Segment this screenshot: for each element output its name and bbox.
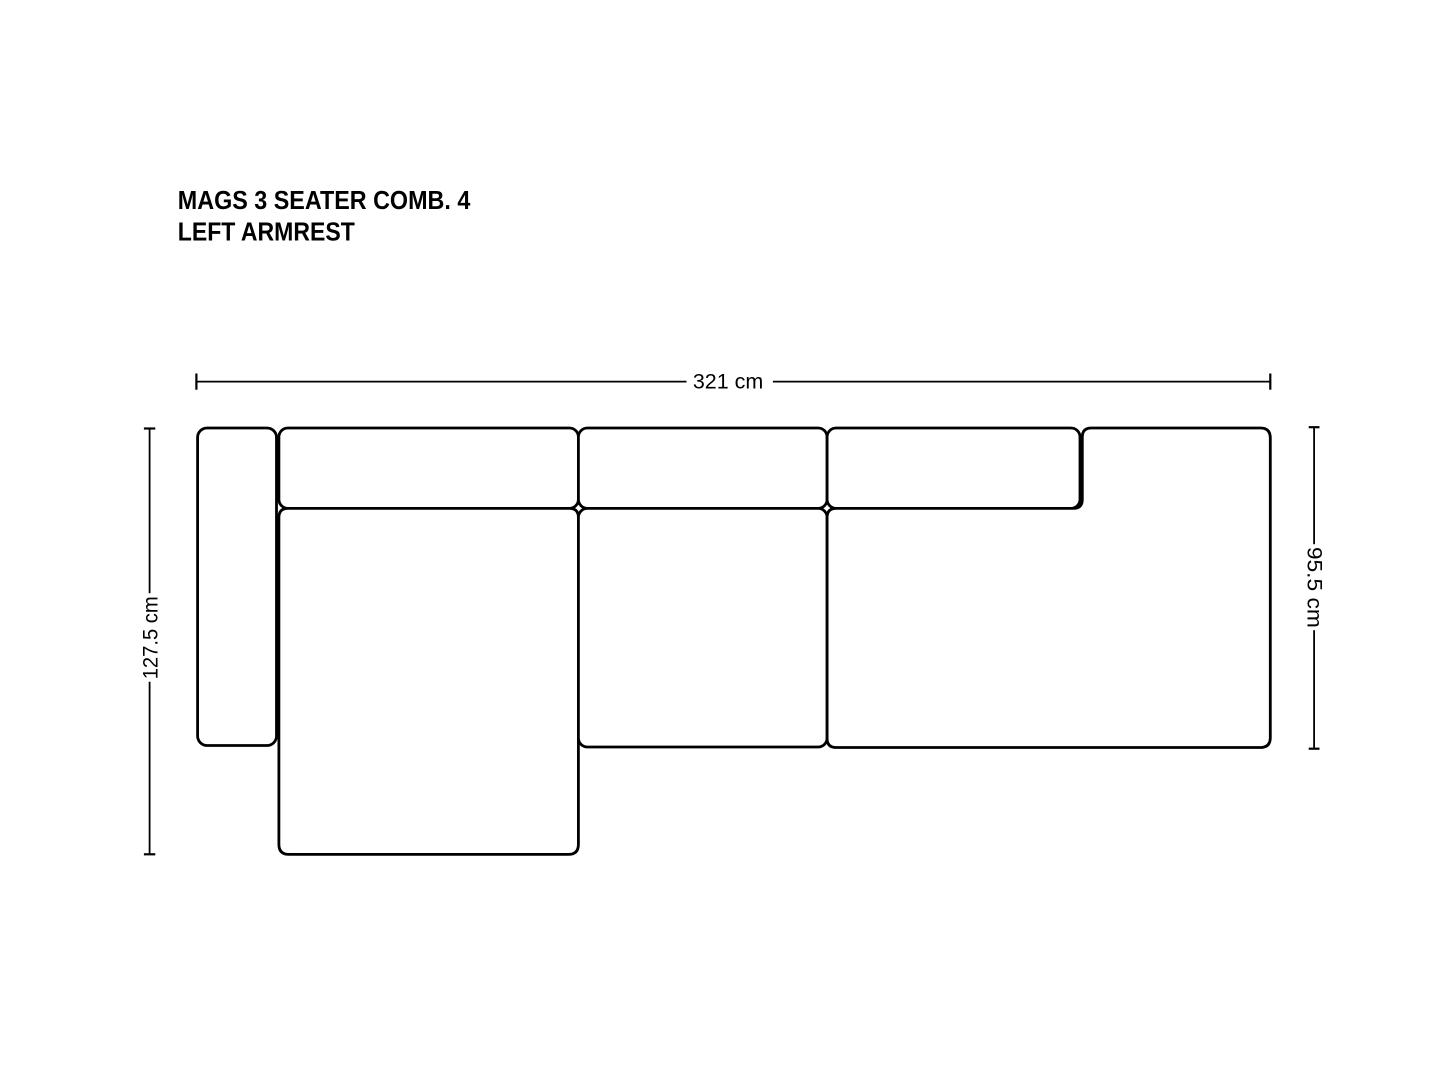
svg-text:MAGS 3 SEATER COMB. 4: MAGS 3 SEATER COMB. 4 xyxy=(178,185,471,215)
svg-text:LEFT ARMREST: LEFT ARMREST xyxy=(178,216,355,246)
svg-text:95.5 cm: 95.5 cm xyxy=(1303,547,1326,628)
svg-text:321 cm: 321 cm xyxy=(693,371,764,394)
svg-text:127.5 cm: 127.5 cm xyxy=(139,596,162,679)
